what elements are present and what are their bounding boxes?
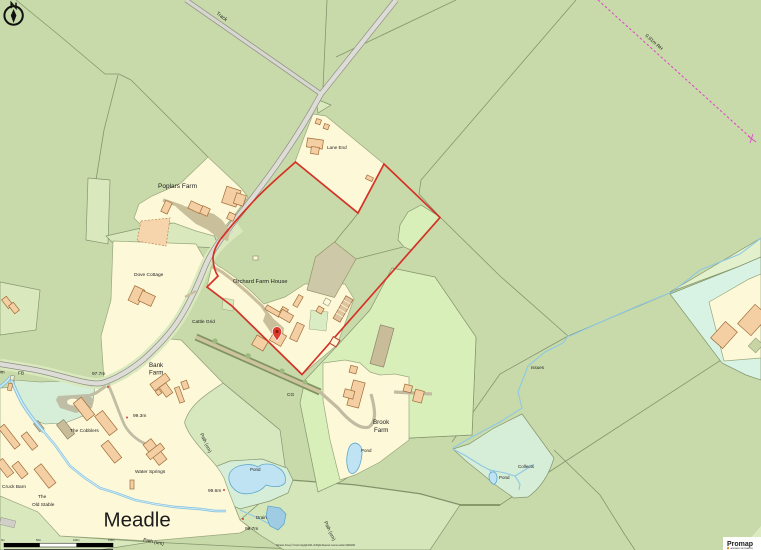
svg-text:100m: 100m bbox=[73, 538, 80, 542]
svg-text:Dove Cottage: Dove Cottage bbox=[134, 272, 164, 278]
svg-text:Collects: Collects bbox=[518, 464, 535, 469]
svg-text:99.6m: 99.6m bbox=[208, 488, 221, 494]
svg-text:99.7m: 99.7m bbox=[245, 526, 258, 532]
svg-text:Cruck Barn: Cruck Barn bbox=[2, 484, 26, 490]
svg-text:0m: 0m bbox=[1, 538, 5, 542]
svg-text:97.7m: 97.7m bbox=[92, 371, 105, 377]
svg-text:The: The bbox=[38, 494, 47, 500]
svg-text:FB: FB bbox=[18, 371, 24, 377]
svg-text:Bank: Bank bbox=[149, 362, 164, 369]
svg-text:99.3m: 99.3m bbox=[133, 413, 146, 419]
svg-text:Brook: Brook bbox=[373, 419, 390, 426]
svg-text:Lane End: Lane End bbox=[327, 145, 347, 150]
svg-text:The Cobblers: The Cobblers bbox=[70, 428, 99, 434]
svg-text:Pond: Pond bbox=[361, 448, 372, 453]
svg-text:Poplars Farm: Poplars Farm bbox=[158, 183, 197, 190]
svg-text:Pond: Pond bbox=[250, 467, 261, 472]
svg-text:Water Springs: Water Springs bbox=[135, 469, 166, 475]
svg-text:50m: 50m bbox=[36, 538, 41, 542]
svg-text:Farm: Farm bbox=[149, 370, 163, 377]
svg-text:Promap: Promap bbox=[727, 541, 753, 548]
svg-text:Ordnance Survey © Crown Copyri: Ordnance Survey © Crown Copyright 2021. … bbox=[276, 544, 356, 547]
svg-text:150m: 150m bbox=[108, 538, 115, 542]
svg-text:Old Stable: Old Stable bbox=[32, 502, 55, 508]
svg-text:Farm: Farm bbox=[374, 427, 388, 434]
svg-text:Meadle: Meadle bbox=[104, 509, 171, 532]
svg-text:Cattle Grid: Cattle Grid bbox=[192, 319, 215, 325]
svg-text:Drain: Drain bbox=[256, 515, 267, 520]
svg-text:CG: CG bbox=[287, 392, 294, 398]
svg-text:Pond: Pond bbox=[499, 475, 510, 480]
svg-text:Issues: Issues bbox=[531, 365, 545, 370]
svg-text:Orchard Farm House: Orchard Farm House bbox=[233, 279, 287, 285]
svg-text:0m: 0m bbox=[0, 370, 5, 376]
